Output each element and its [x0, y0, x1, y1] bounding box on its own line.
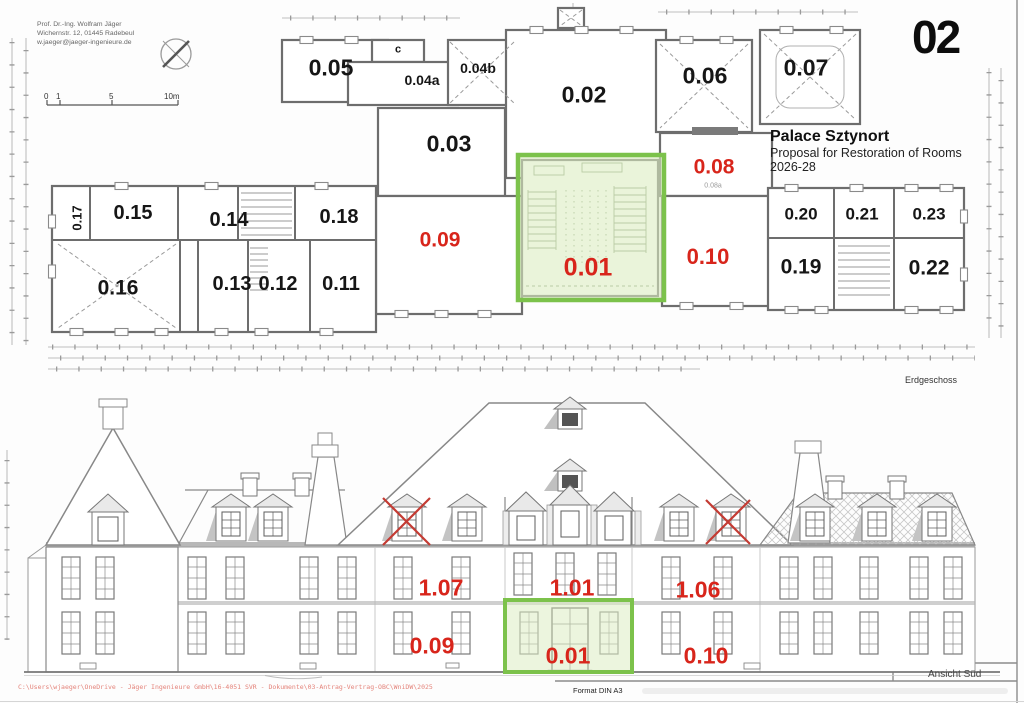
- file-path: C:\Users\wjaeger\OneDrive - Jäger Ingeni…: [18, 683, 433, 692]
- room-label-c: c: [395, 45, 401, 56]
- room-label-0-22: 0.22: [909, 258, 950, 279]
- room-label-0-09: 0.09: [420, 230, 461, 251]
- architect-info: Prof. Dr.-Ing. Wolfram Jäger Wichernstr.…: [37, 20, 134, 48]
- room-label-0-07: 0.07: [784, 57, 829, 80]
- faded-stamp: [642, 688, 1008, 694]
- room-label-0-04a: 0.04a: [404, 73, 439, 87]
- plan-and-elevation-drawing: [0, 0, 1024, 703]
- elevation-label-0-09: 0.09: [410, 635, 455, 658]
- architect-address: Wichernstr. 12, 01445 Radebeul: [37, 29, 134, 38]
- project-period: 2026-28: [770, 159, 816, 176]
- compass-icon: [161, 39, 191, 69]
- room-label-0-10: 0.10: [687, 246, 730, 268]
- drawing-sheet: Prof. Dr.-Ing. Wolfram Jäger Wichernstr.…: [0, 0, 1024, 703]
- room-label-0-01: 0.01: [564, 256, 613, 281]
- room-label-0-18: 0.18: [320, 207, 359, 227]
- room-label-0-15: 0.15: [114, 203, 153, 223]
- room-label-0-05: 0.05: [309, 57, 354, 80]
- elevation-drawing: [24, 397, 1000, 679]
- elevation-label-1-06: 1.06: [676, 579, 721, 602]
- room-label-0-11: 0.11: [322, 274, 360, 294]
- room-label-0-23: 0.23: [912, 206, 945, 223]
- room-label-0-03: 0.03: [427, 133, 472, 156]
- room-label-0-12: 0.12: [259, 274, 298, 294]
- scale-label-1: 1: [56, 92, 60, 103]
- room-label-0-04b: 0.04b: [460, 61, 496, 75]
- format-label: Format DIN A3: [573, 686, 623, 696]
- scale-label-5: 5: [109, 92, 113, 103]
- room-label-0-17: 0.17: [71, 205, 84, 230]
- room-label-0-21: 0.21: [845, 206, 878, 223]
- elevation-label-1-01: 1.01: [550, 577, 595, 600]
- room-label-0-06: 0.06: [683, 65, 728, 88]
- elevation-label-1-07: 1.07: [419, 577, 464, 600]
- room-label-0-19: 0.19: [781, 257, 822, 278]
- architect-email: w.jaeger@jaeger-ingenieure.de: [37, 38, 134, 47]
- room-label-0-02: 0.02: [562, 84, 607, 107]
- room-label-0-13: 0.13: [213, 274, 252, 294]
- room-label-0-16: 0.16: [98, 278, 139, 299]
- plan-caption: Erdgeschoss: [905, 374, 957, 386]
- page-number: 02: [912, 10, 959, 64]
- architect-name: Prof. Dr.-Ing. Wolfram Jäger: [37, 20, 134, 29]
- elevation-label-0-10: 0.10: [684, 645, 729, 668]
- elevation-caption: Ansicht Süd: [928, 668, 981, 682]
- room-label-0-08a: 0.08a: [704, 183, 722, 190]
- room-label-0-20: 0.20: [784, 206, 817, 223]
- elevation-label-0-01: 0.01: [546, 645, 591, 668]
- room-label-0-08: 0.08: [694, 157, 735, 178]
- room-label-0-14: 0.14: [210, 210, 249, 230]
- scale-label-10m: 10m: [164, 92, 180, 103]
- scale-label-0: 0: [44, 92, 48, 103]
